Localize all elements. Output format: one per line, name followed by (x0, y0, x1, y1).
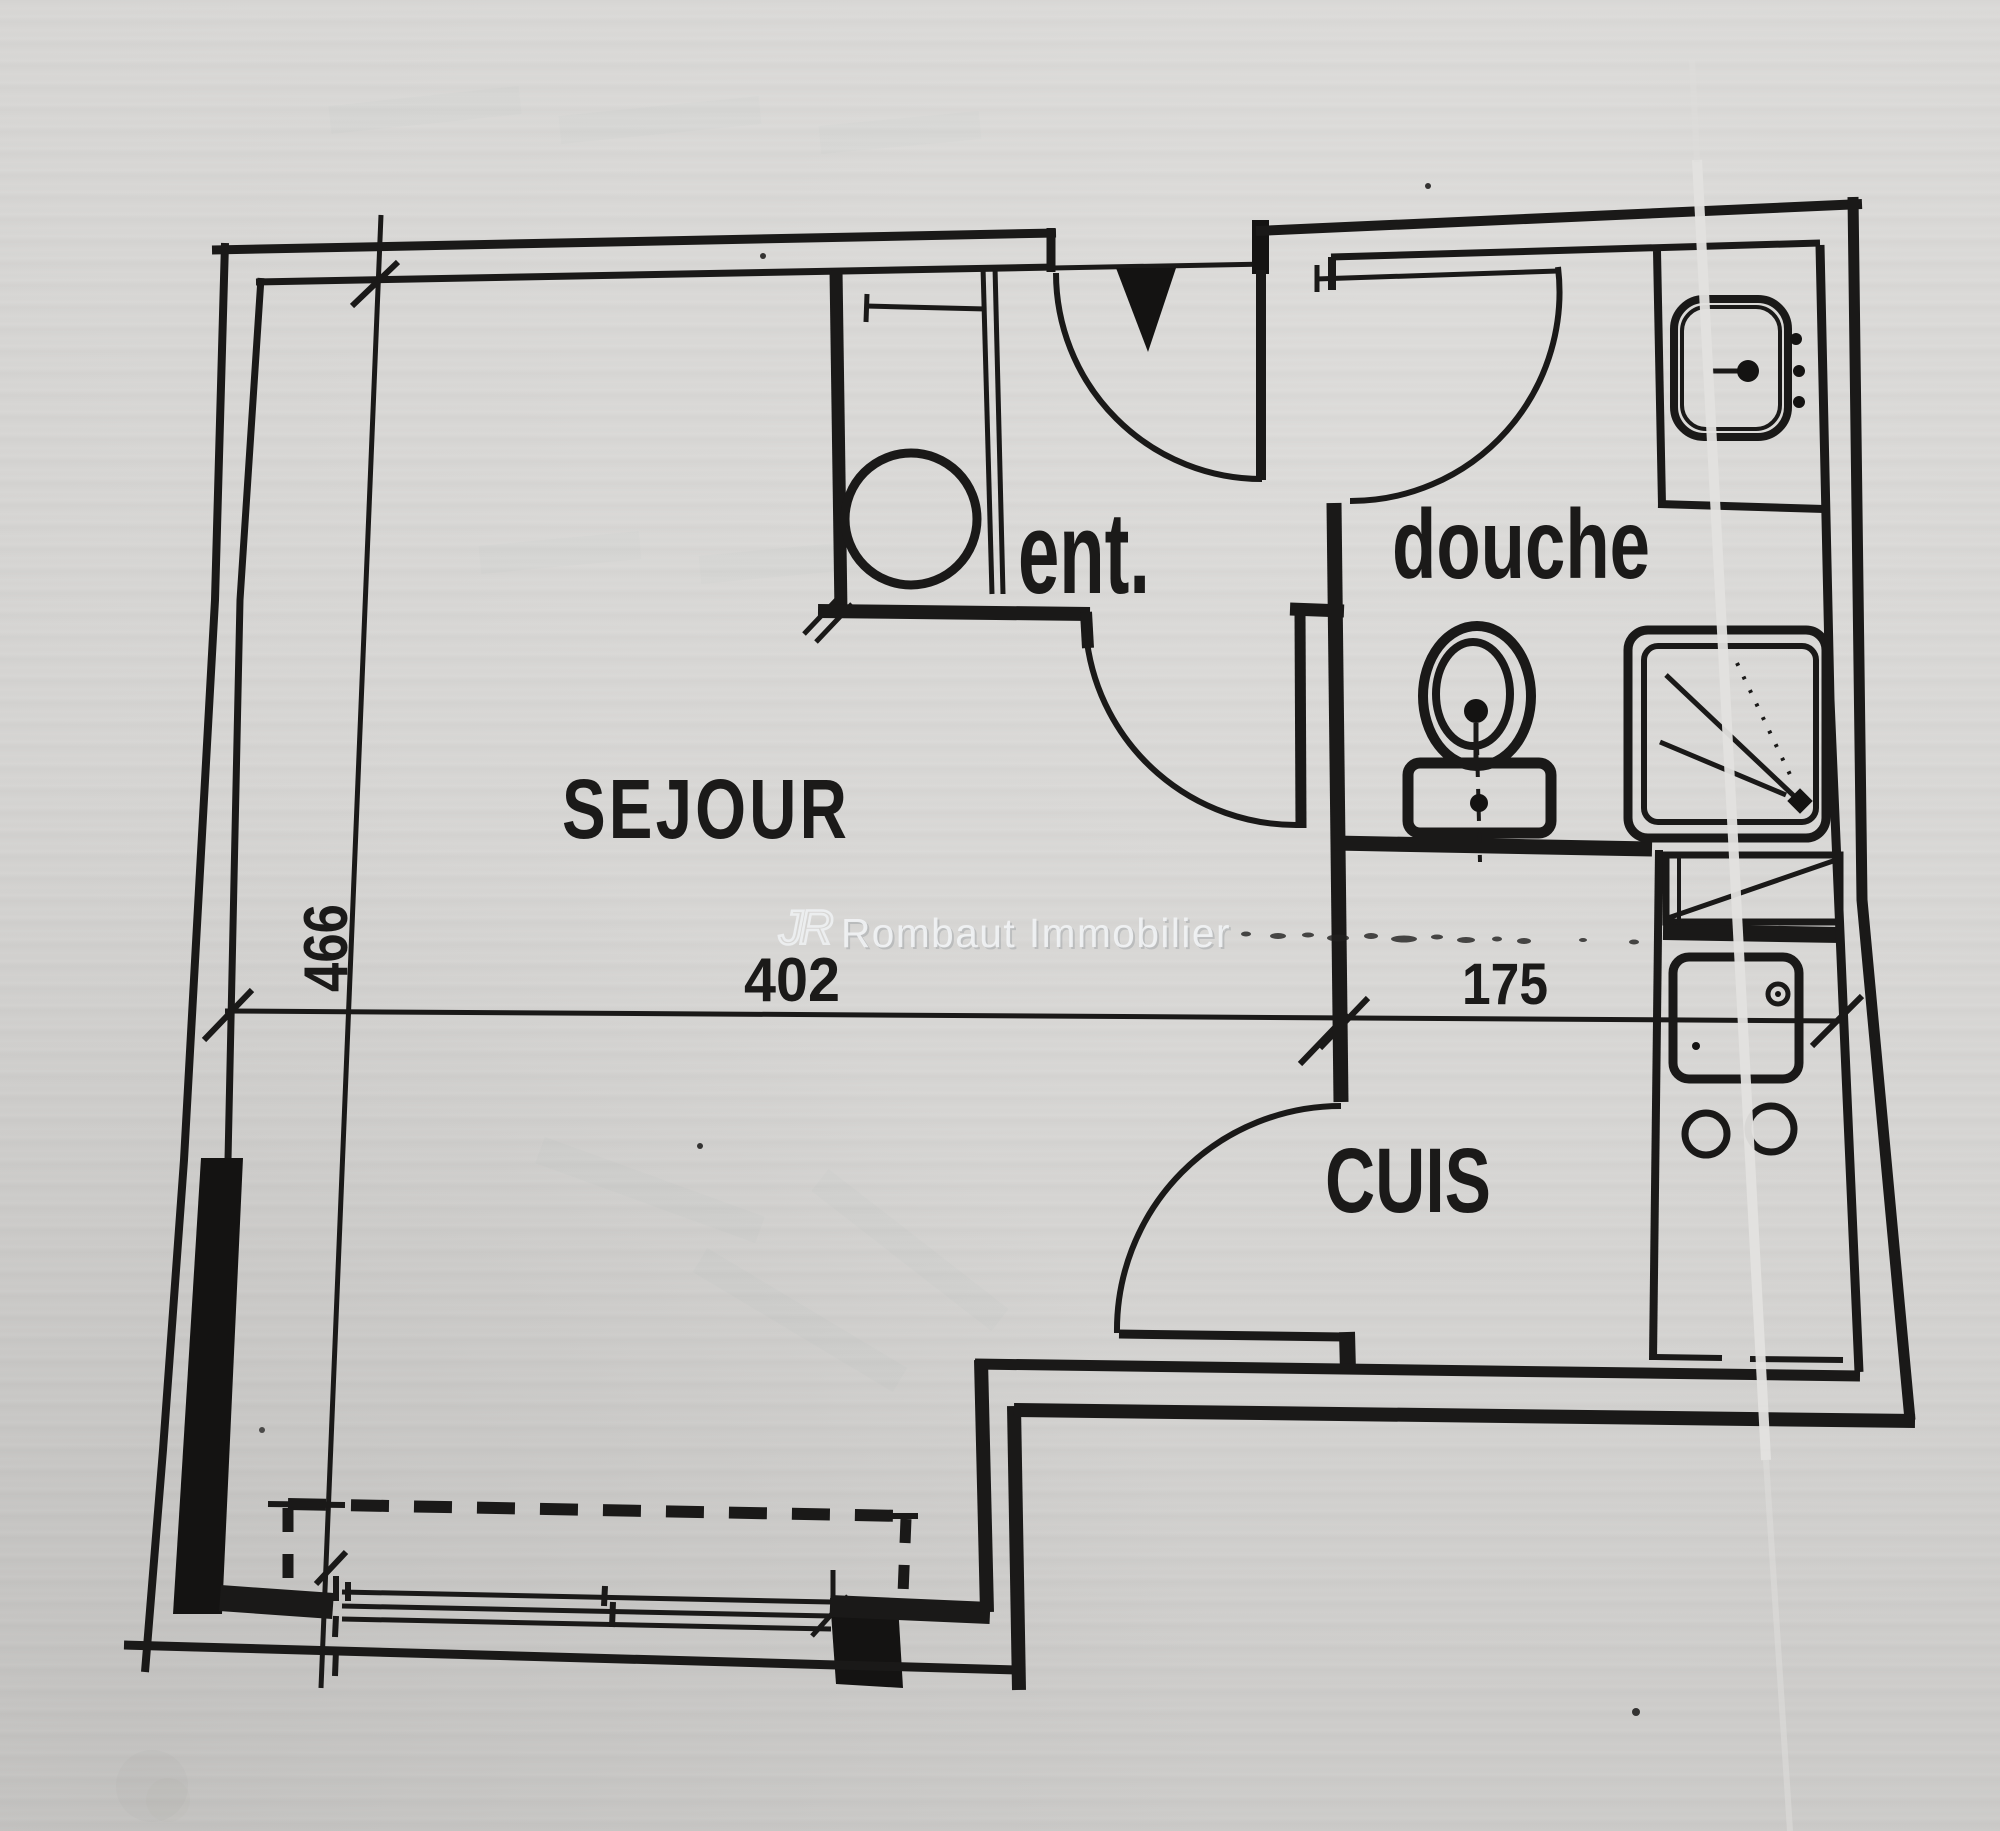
svg-text:JR: JR (778, 902, 833, 955)
svg-text:175: 175 (1462, 952, 1548, 1017)
svg-text:SEJOUR: SEJOUR (562, 762, 850, 856)
svg-text:ent.: ent. (1018, 488, 1150, 618)
svg-text:Rombaut Immobilier: Rombaut Immobilier (841, 910, 1231, 956)
svg-text:402: 402 (744, 946, 840, 1015)
svg-text:douche: douche (1392, 489, 1650, 599)
svg-text:466: 466 (292, 904, 361, 992)
svg-text:CUIS: CUIS (1325, 1130, 1491, 1232)
